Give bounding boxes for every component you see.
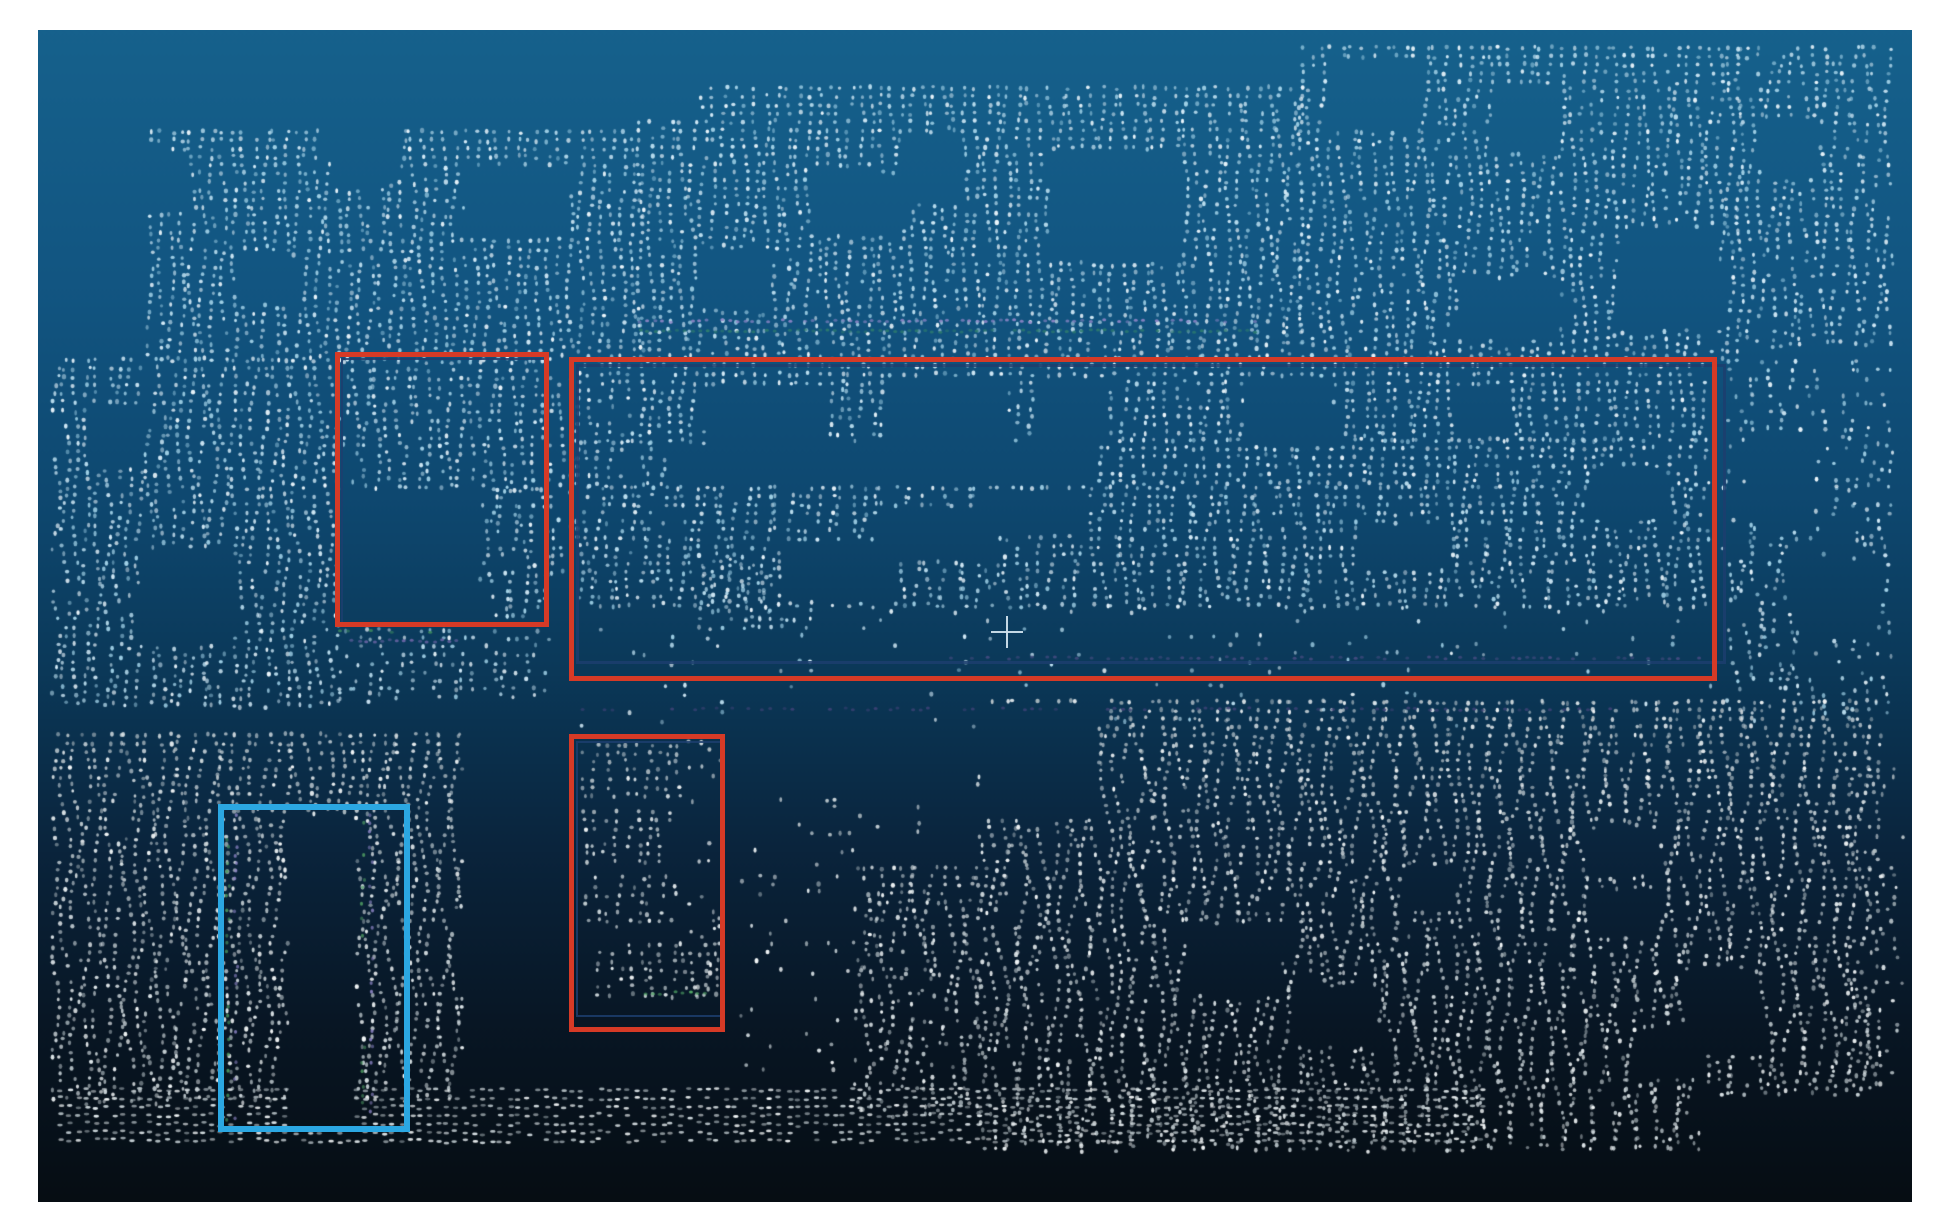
red-annotation-box-1[interactable]	[335, 352, 549, 627]
pointcloud-labeling-window	[0, 0, 1951, 1231]
cyan-annotation-box-1[interactable]	[218, 804, 410, 1132]
red-annotation-box-2[interactable]	[569, 357, 1717, 681]
pointcloud-viewport[interactable]	[38, 30, 1912, 1202]
red-annotation-box-3[interactable]	[569, 734, 725, 1032]
